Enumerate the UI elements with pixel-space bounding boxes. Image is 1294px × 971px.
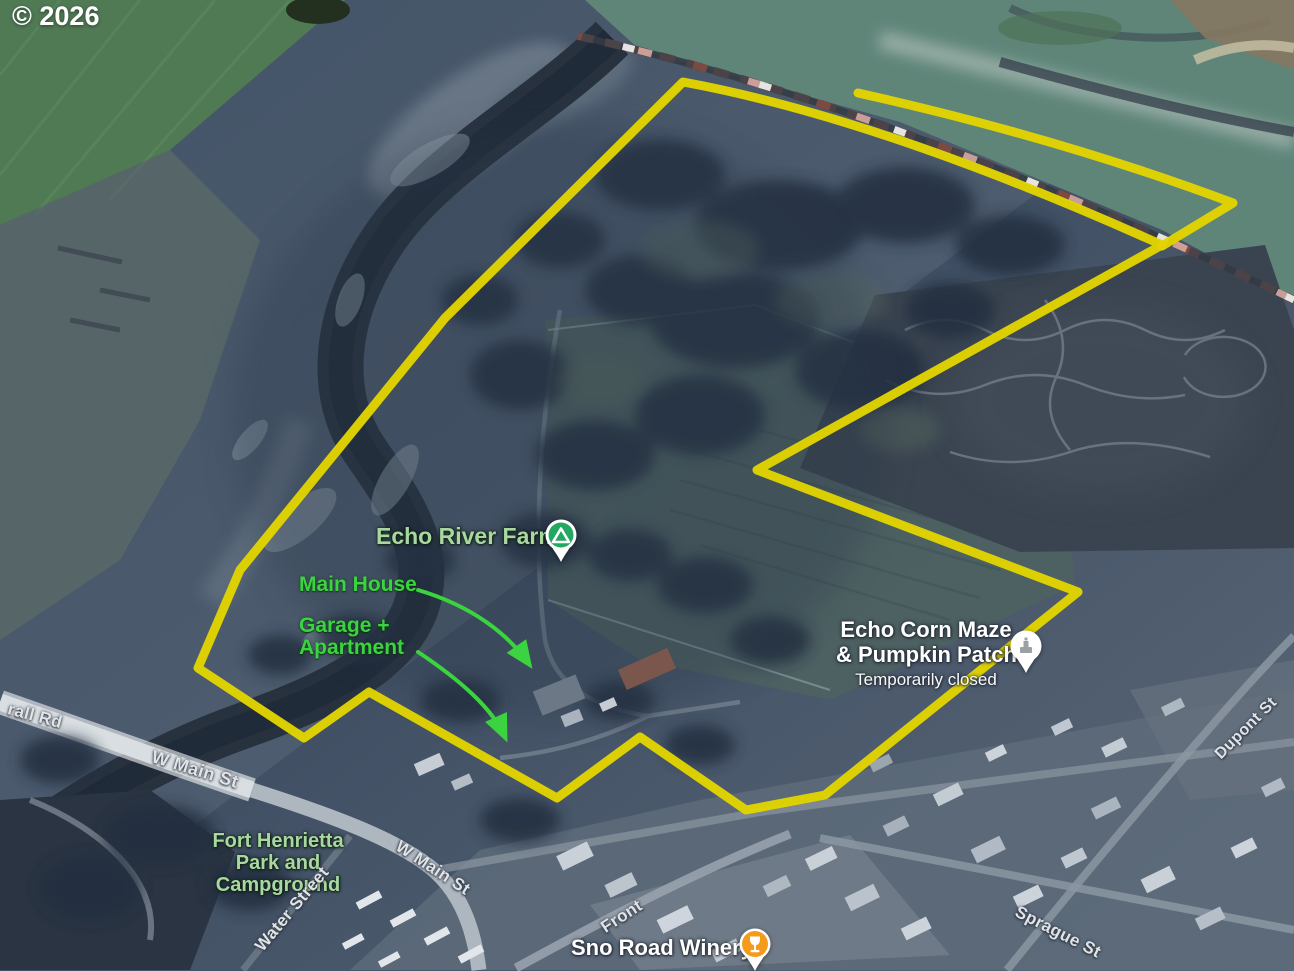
satellite-imagery: [0, 0, 1294, 971]
corn-maze-name-line1: Echo Corn Maze: [836, 617, 1016, 642]
map-canvas[interactable]: © 2026 Echo River Farms Main House Garag…: [0, 0, 1294, 971]
annotation-main-house: Main House: [299, 573, 417, 596]
annotation-garage-apartment: Garage + Apartment: [299, 615, 404, 659]
annotation-garage-line2: Apartment: [299, 637, 404, 659]
fort-henrietta-line1: Fort Henrietta: [194, 830, 362, 852]
annotation-garage-line1: Garage +: [299, 615, 404, 637]
attraction-pin[interactable]: [1008, 630, 1044, 674]
place-label-echo-corn-maze[interactable]: Echo Corn Maze & Pumpkin Patch Temporari…: [836, 617, 1016, 692]
fort-henrietta-line3: Campground: [194, 874, 362, 896]
wine-glass-pin[interactable]: [737, 928, 773, 971]
campground-pin[interactable]: [543, 519, 579, 563]
place-label-sno-road-winery[interactable]: Sno Road Winery: [571, 936, 753, 960]
status-temporarily-closed: Temporarily closed: [836, 667, 1016, 692]
copyright-watermark: © 2026: [12, 2, 99, 32]
corn-maze-name-line2: & Pumpkin Patch: [836, 642, 1016, 667]
fort-henrietta-line2: Park and: [194, 852, 362, 874]
place-label-fort-henrietta[interactable]: Fort Henrietta Park and Campground: [194, 830, 362, 896]
